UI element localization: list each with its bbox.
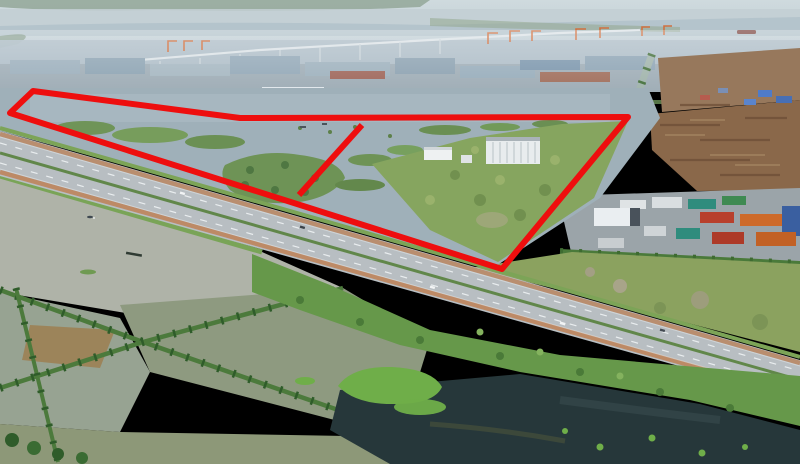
orange-containers xyxy=(740,214,782,226)
aerial-photo xyxy=(0,0,800,464)
parked-trucks xyxy=(598,238,624,248)
timber-yard xyxy=(650,48,800,191)
long-warehouse-building xyxy=(486,137,540,164)
small-boat xyxy=(87,216,93,219)
blue-containers xyxy=(782,206,800,236)
red-containers xyxy=(700,212,734,223)
hut xyxy=(461,155,472,163)
teal-containers xyxy=(688,199,716,209)
